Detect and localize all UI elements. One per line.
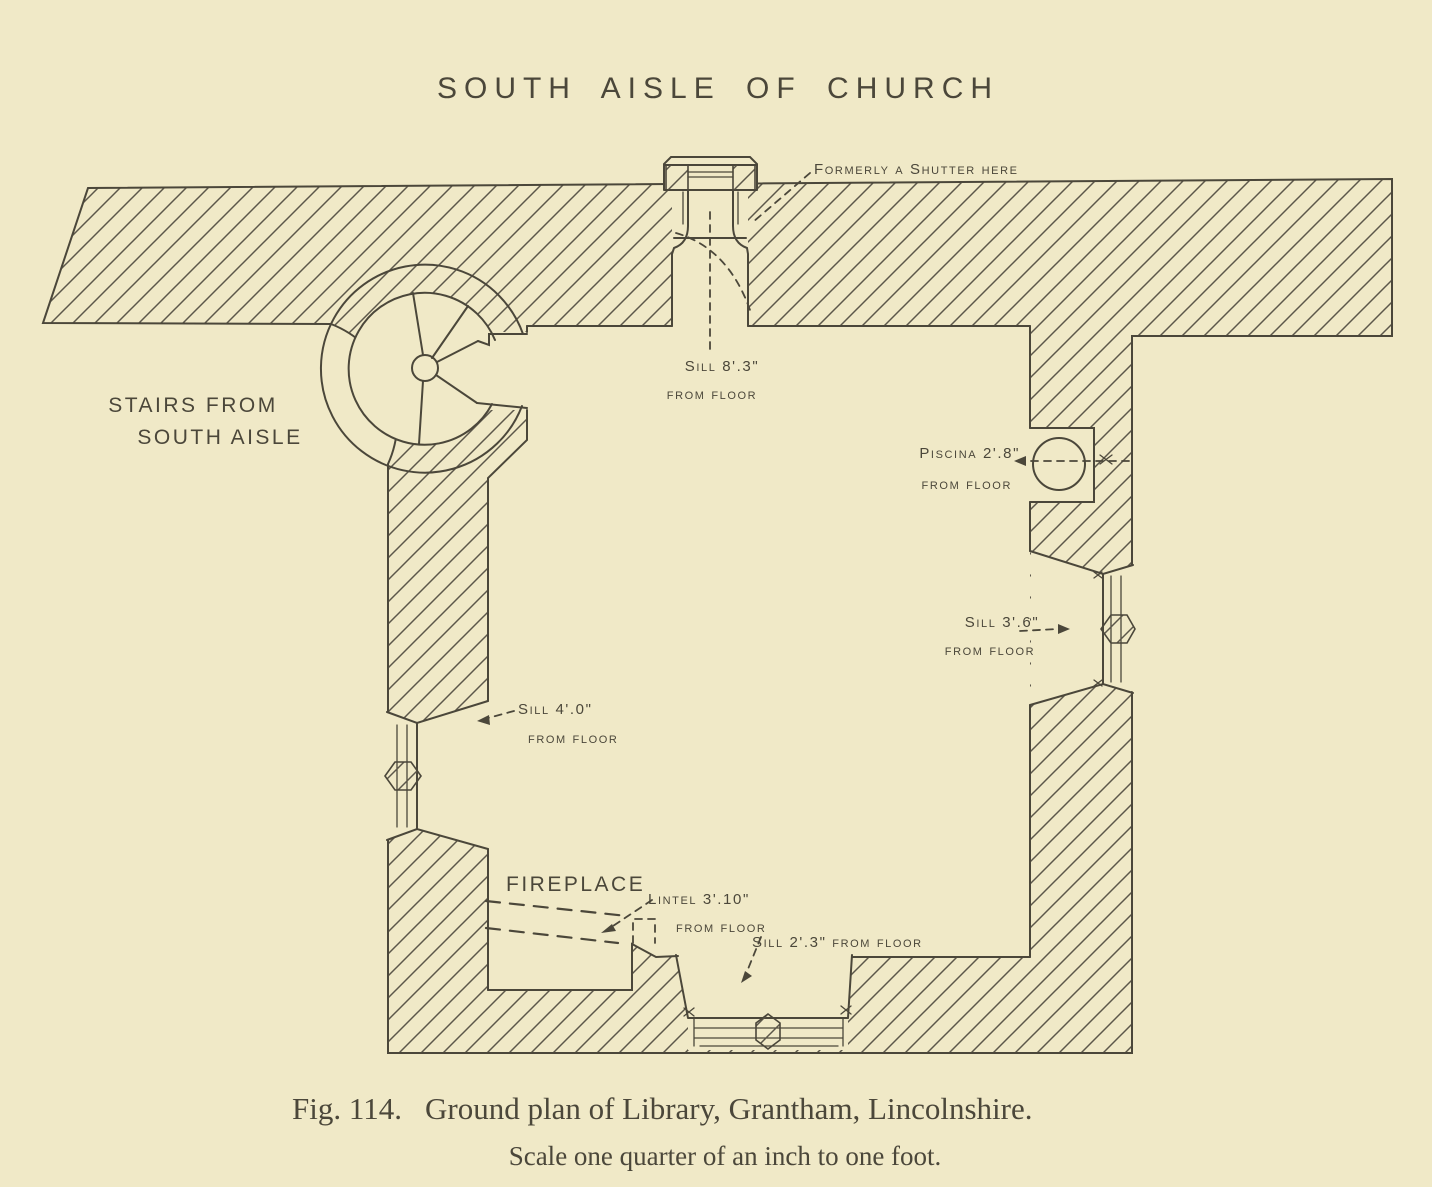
label-stairs-line2: SOUTH AISLE [137, 426, 302, 449]
label-sill-top-line2: from floor [667, 386, 757, 403]
caption-text: Ground plan of Library, Grantham, Lincol… [425, 1091, 1032, 1126]
piscina-basin [1033, 438, 1085, 490]
label-shutter: Formerly a Shutter here [814, 161, 1019, 178]
label-sill-right-line2: from floor [945, 642, 1035, 659]
label-sill-left-line2: from floor [528, 730, 618, 747]
label-piscina-line2: from floor [922, 476, 1012, 493]
caption-scale: Scale one quarter of an inch to one foot… [509, 1141, 942, 1171]
figure-number: Fig. 114. [292, 1091, 402, 1126]
label-piscina-line1: Piscina 2'.8" [919, 445, 1020, 462]
newel-post [412, 355, 438, 381]
label-sill-bottom: Sill 2'.3" from floor [752, 934, 923, 951]
label-sill-left-line1: Sill 4'.0" [518, 701, 593, 718]
book-page: SOUTH AISLE OF CHURCH Formerly a Shutter… [0, 0, 1432, 1187]
ground-plan-figure: SOUTH AISLE OF CHURCH Formerly a Shutter… [0, 0, 1432, 1187]
window-head-east-jamb [733, 165, 755, 190]
label-stairs-line1: STAIRS FROM [108, 394, 277, 417]
window-head-west-jamb [666, 165, 688, 190]
label-lintel-line1: Lintel 3'.10" [648, 891, 750, 908]
label-sill-top-line1: Sill 8'.3" [685, 358, 760, 375]
label-fireplace: FIREPLACE [506, 873, 645, 896]
figure-title: SOUTH AISLE OF CHURCH [437, 72, 999, 105]
label-sill-right-line1: Sill 3'.6" [965, 614, 1040, 631]
